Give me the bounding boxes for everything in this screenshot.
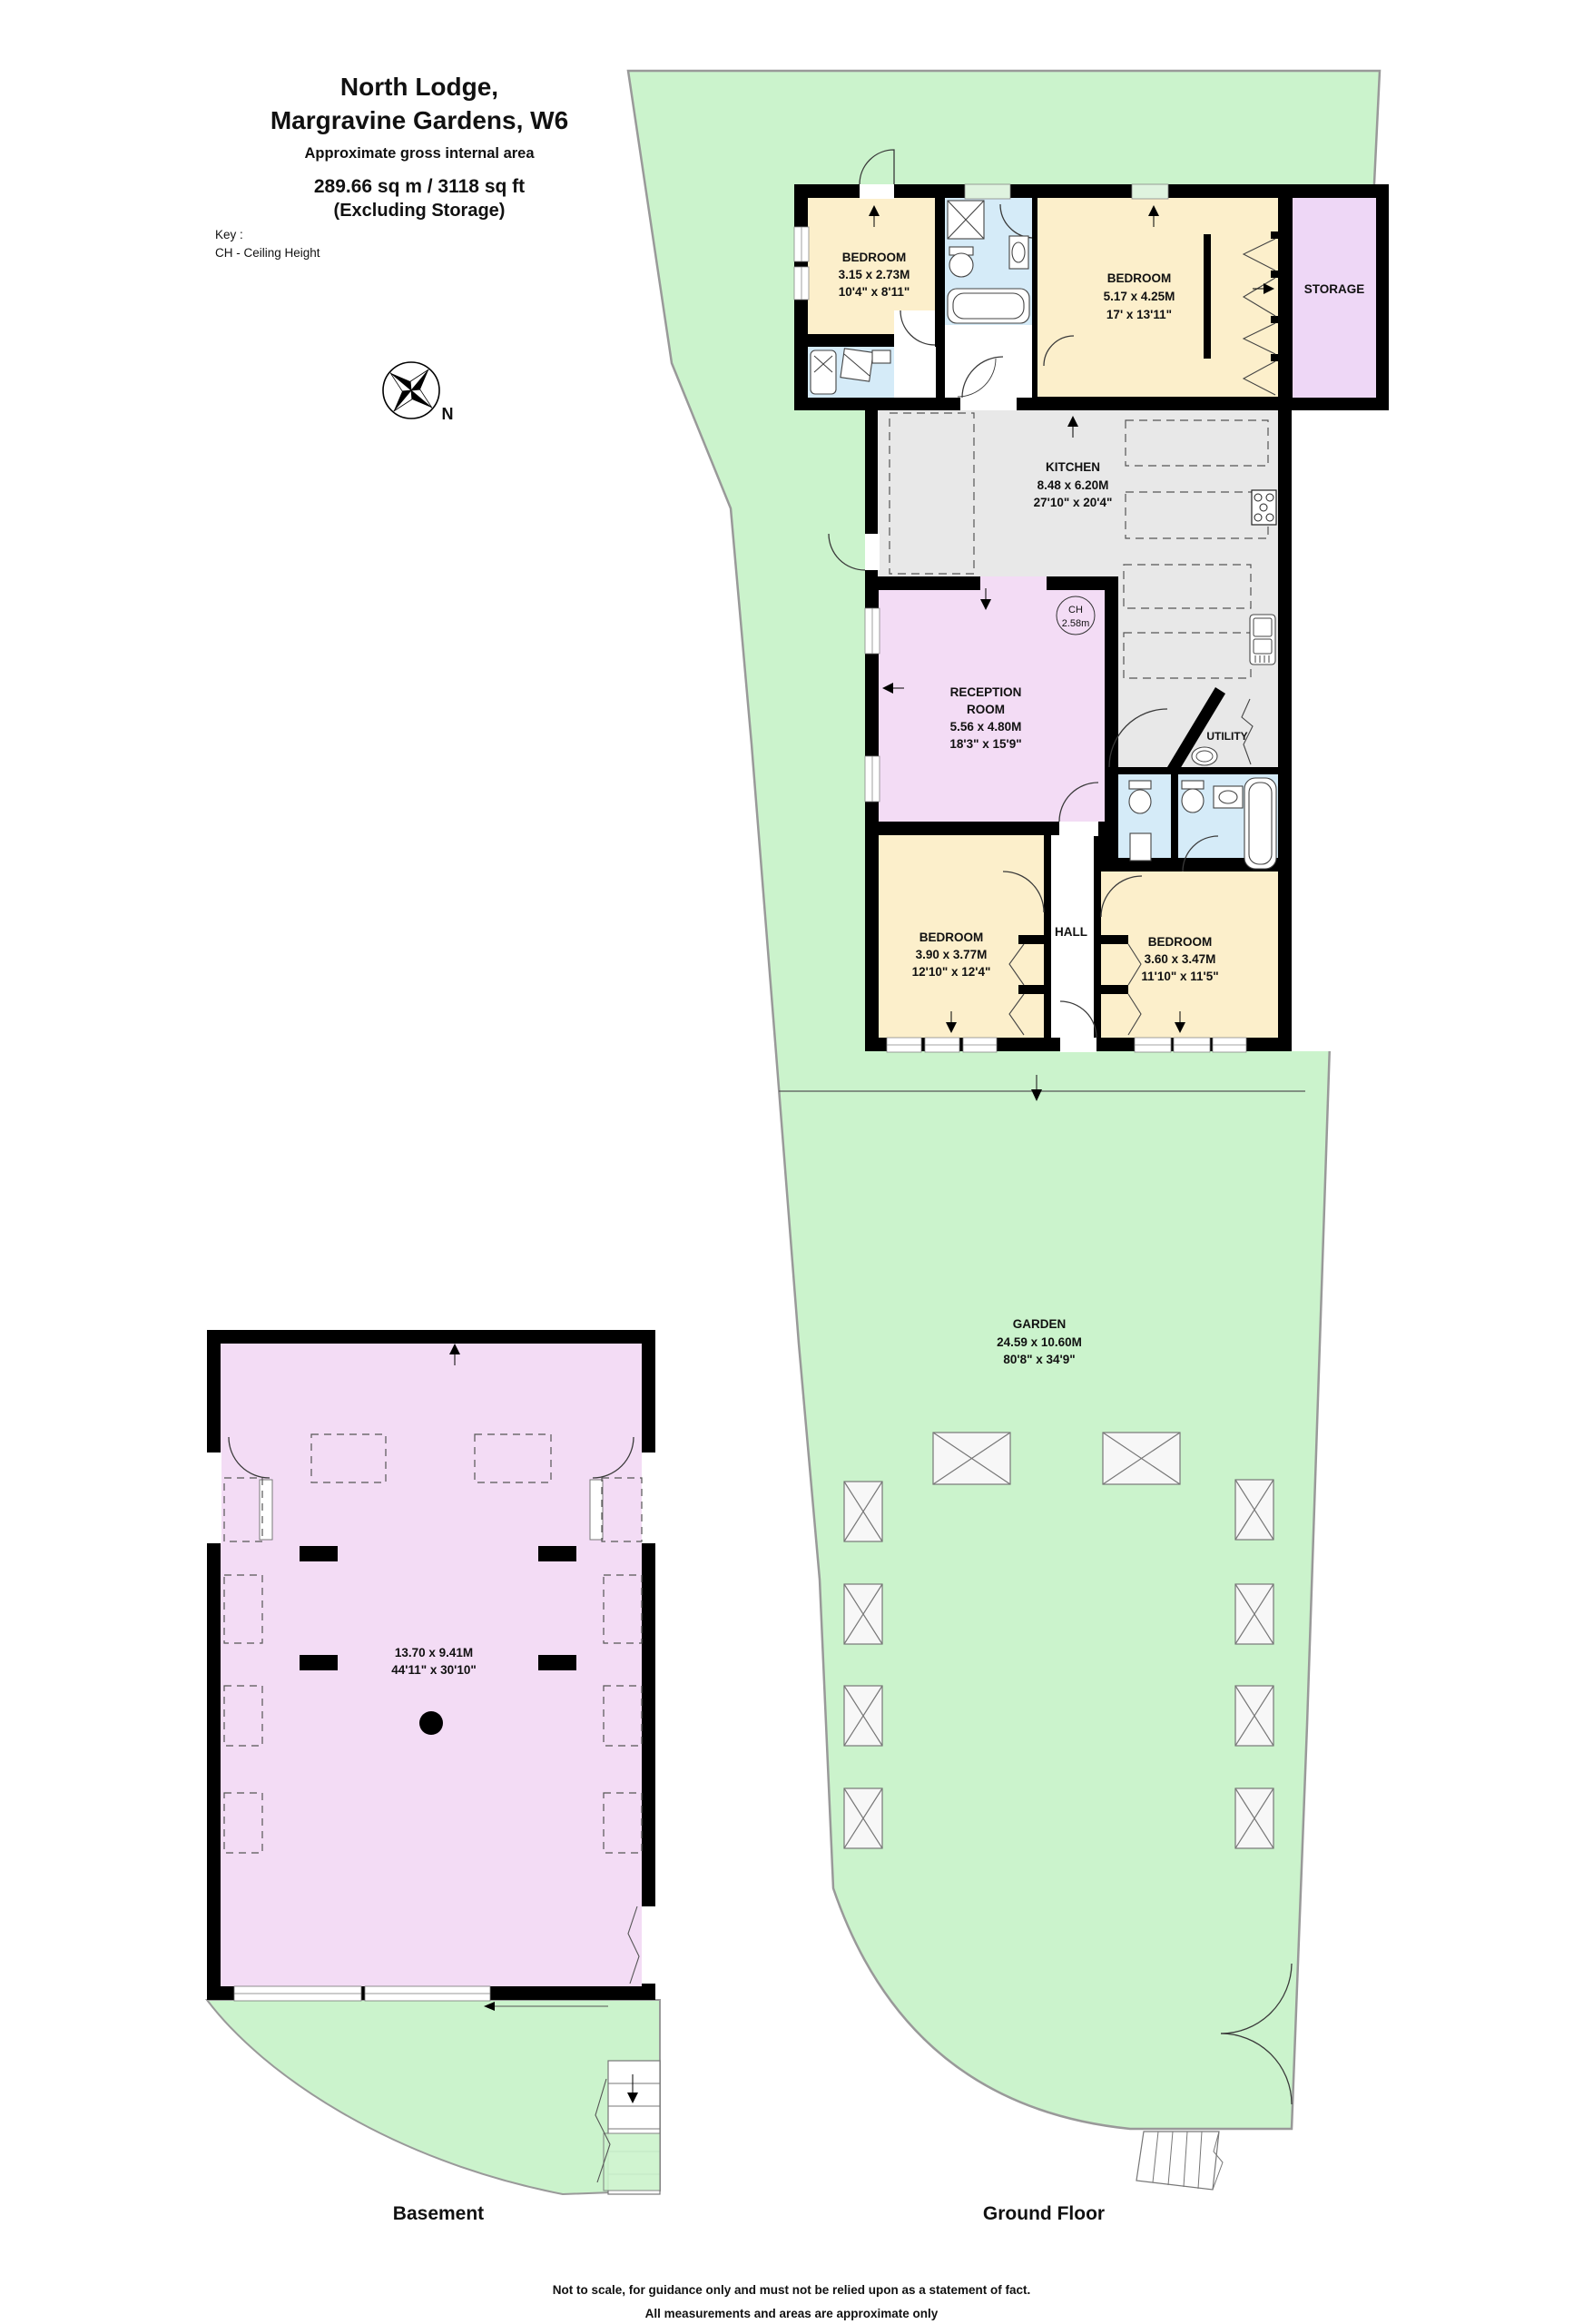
ground-floor-label: Ground Floor [983,2203,1105,2224]
planter [1235,1686,1273,1746]
bedroom4-metric: 3.60 x 3.47M [1145,952,1216,966]
planter [1103,1433,1180,1484]
basement-floor-label: Basement [393,2203,484,2224]
ch-abbr: CH [1068,605,1083,615]
kitchen-sink-icon [1250,615,1275,665]
room-kitchen-wing [1118,576,1278,774]
hall-label: HALL [1055,925,1087,939]
compass-north-label: N [442,405,454,423]
footer-disclaimer-line1: Not to scale, for guidance only and must… [553,2283,1031,2297]
garden-imperial: 80'8" x 34'9" [1003,1353,1075,1366]
page-area-note: (Excluding Storage) [334,201,506,221]
planter [933,1433,1010,1484]
utility-sink-icon [1192,747,1217,765]
storage-label: STORAGE [1304,282,1365,296]
key-title: Key : [215,228,243,241]
kitchen-label: KITCHEN [1046,460,1100,474]
page-area: 289.66 sq m / 3118 sq ft [314,176,525,197]
reception-metric: 5.56 x 4.80M [950,720,1022,734]
planter [844,1686,882,1746]
basement-metric: 13.70 x 9.41M [395,1646,473,1659]
utility-label: UTILITY [1206,730,1247,743]
bedroom4-label: BEDROOM [1148,935,1213,949]
bedroom1-metric: 3.15 x 2.73M [839,268,910,281]
garden-stairs [1136,2132,1223,2190]
footer-disclaimer-line2: All measurements and areas are approxima… [645,2307,939,2320]
bedroom1-imperial: 10'4" x 8'11" [839,285,910,299]
page-subtitle: Approximate gross internal area [304,145,535,162]
planter [1235,1480,1273,1540]
planter [1235,1788,1273,1848]
compass-icon: N [373,352,454,429]
kitchen-imperial: 27'10" x 20'4" [1034,496,1113,509]
planter [844,1788,882,1848]
floorplan-svg: BEDROOM 3.15 x 2.73M 10'4" x 8'11" BEDRO… [0,0,1593,2324]
ch-value: 2.58m [1062,618,1090,629]
planter [844,1584,882,1644]
planter [844,1482,882,1541]
reception-label2: ROOM [967,703,1005,716]
room-landing [945,325,1032,398]
kitchen-metric: 8.48 x 6.20M [1037,478,1109,492]
bedroom2-imperial: 17' x 13'11" [1106,308,1172,321]
room-kitchen [878,410,1278,576]
room-storage [1293,198,1376,398]
header: North Lodge, Margravine Gardens, W6 Appr… [270,73,568,221]
bedroom1-label: BEDROOM [842,251,907,264]
garden-label: GARDEN [1013,1317,1067,1331]
key-ceiling-height: CH - Ceiling Height [215,246,320,260]
bedroom4-imperial: 11'10" x 11'5" [1141,970,1218,983]
hob-icon [1252,490,1276,525]
plot-notch [1292,410,1401,1051]
floorplan-page: BEDROOM 3.15 x 2.73M 10'4" x 8'11" BEDRO… [0,0,1593,2324]
reception-imperial: 18'3" x 15'9" [949,737,1021,751]
basement-plan: 13.70 x 9.41M 44'11" x 30'10" [207,1330,660,2194]
bedroom3-label: BEDROOM [919,931,984,944]
bedroom3-imperial: 12'10" x 12'4" [912,965,991,979]
key-block: Key : CH - Ceiling Height [215,228,320,260]
bedroom2-metric: 5.17 x 4.25M [1104,290,1175,303]
bedroom2-label: BEDROOM [1107,271,1172,285]
bedroom3-metric: 3.90 x 3.77M [916,948,988,961]
planter [1235,1584,1273,1644]
page-title-line2: Margravine Gardens, W6 [270,106,568,134]
reception-label: RECEPTION [950,685,1022,699]
basement-imperial: 44'11" x 30'10" [391,1663,477,1677]
page-title-line1: North Lodge, [340,73,498,101]
garden-metric: 24.59 x 10.60M [997,1335,1082,1349]
